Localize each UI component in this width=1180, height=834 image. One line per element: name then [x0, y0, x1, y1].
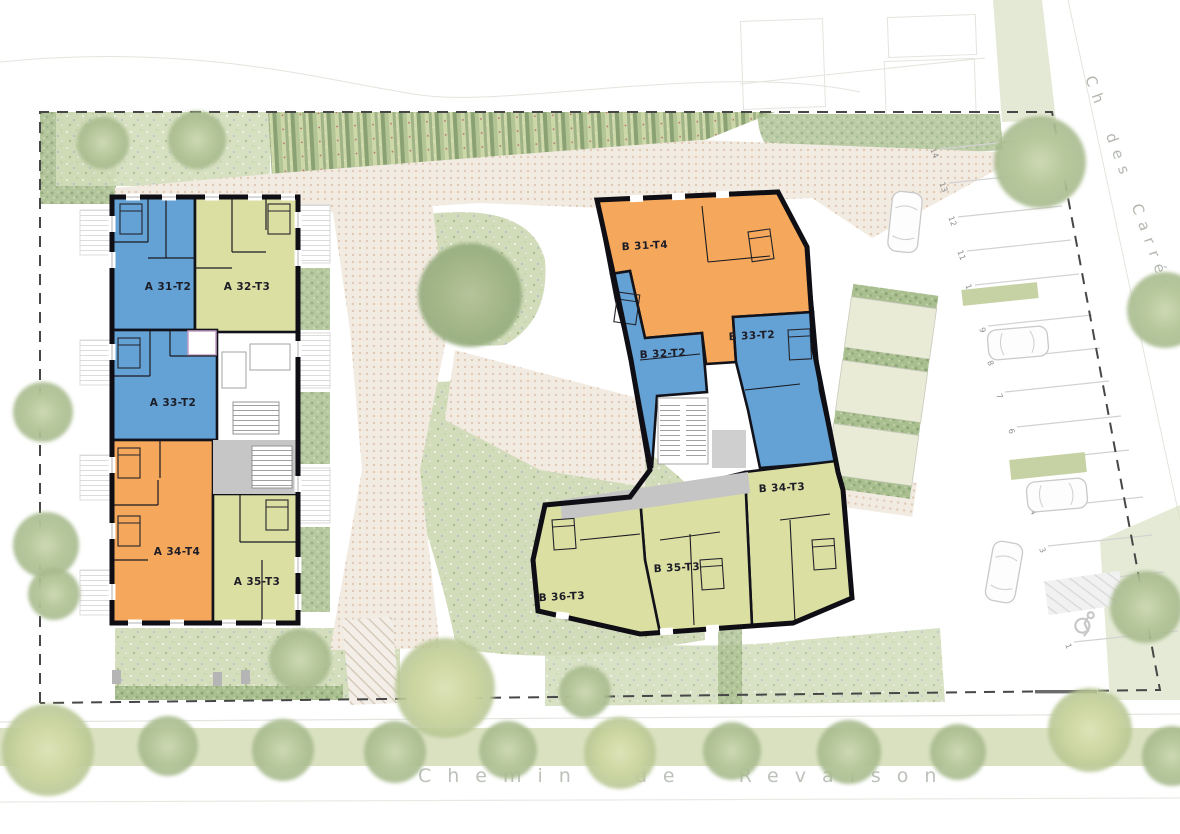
garden-patch — [300, 527, 330, 612]
hatched-path — [342, 617, 400, 705]
core-corridor — [712, 430, 746, 468]
window — [660, 628, 673, 636]
tree — [13, 512, 79, 578]
utility-room — [222, 352, 246, 388]
parking-green-strip — [1009, 452, 1087, 480]
building-a: A 31-T2 A 32-T3 A 33-T2 A 34-T4 A 35-T3 — [109, 194, 302, 627]
street-tree — [1048, 688, 1132, 772]
neighbor-plot-outline — [887, 14, 976, 57]
window — [716, 191, 729, 199]
garden-patch — [300, 392, 330, 464]
parking-space-number: 7 — [994, 392, 1004, 400]
street-tree — [479, 721, 537, 779]
stairs — [660, 402, 680, 460]
tree — [168, 111, 226, 169]
window — [706, 625, 719, 633]
parking-space-line — [1005, 381, 1109, 392]
unit-b35-label: B 35-T3 — [653, 561, 700, 575]
neighbor-plot-line — [740, 58, 985, 84]
garden-wall-post — [213, 672, 222, 686]
tree — [269, 629, 331, 691]
parking-space-line — [1017, 416, 1121, 427]
tree — [1110, 571, 1180, 643]
entry-deck — [80, 340, 112, 385]
parking-space-number: 12 — [946, 215, 958, 228]
site-plan-svg: 1234567891011121314 — [0, 0, 1180, 834]
unit-a32-region — [195, 197, 298, 332]
car-outline — [887, 191, 923, 254]
contour-line — [0, 56, 860, 97]
balcony — [300, 468, 330, 523]
tree — [28, 568, 80, 620]
garden-wall-post — [241, 670, 250, 684]
tree — [418, 243, 522, 347]
street-tree — [584, 717, 656, 789]
stairs — [686, 402, 706, 460]
garden-patch — [300, 268, 330, 330]
unit-b33-label: B 33-T2 — [728, 329, 775, 343]
unit-a33-label: A 33-T2 — [150, 397, 196, 409]
tree — [77, 117, 129, 169]
tree — [994, 116, 1086, 208]
tree — [13, 382, 73, 442]
street-tree — [930, 724, 986, 780]
street-tree — [252, 719, 314, 781]
stairs — [233, 402, 279, 434]
car-outline — [1026, 477, 1088, 512]
tree — [559, 666, 611, 718]
tree — [395, 638, 495, 738]
right-street-name: Ch des Carrés — [1081, 73, 1177, 298]
parking-space-number: 9 — [977, 326, 987, 334]
stairs — [252, 446, 292, 488]
street-tree — [703, 722, 761, 780]
car-outline — [987, 325, 1049, 360]
unit-b36-label: B 36-T3 — [538, 590, 585, 604]
entry-deck — [80, 570, 112, 615]
unit-b32-label: B 32-T2 — [639, 347, 686, 361]
balcony — [300, 205, 330, 263]
hedge-row — [718, 624, 742, 704]
unit-a34-region — [112, 440, 213, 623]
parking-space-number: 3 — [1037, 546, 1047, 554]
site-plan: 1234567891011121314 — [0, 0, 1180, 834]
unit-a34-label: A 34-T4 — [154, 546, 200, 558]
car-outline — [984, 540, 1024, 604]
unit-a32-label: A 32-T3 — [224, 281, 270, 293]
window — [672, 193, 685, 201]
wheelchair-icon — [1072, 611, 1100, 638]
parking-space-number: 1 — [1063, 642, 1073, 650]
parking-space-line — [967, 240, 1071, 251]
tree — [1127, 272, 1180, 348]
unit-b34-label: B 34-T3 — [758, 481, 805, 495]
window — [630, 195, 643, 203]
street-verge — [993, 0, 1056, 122]
street-tree — [2, 704, 94, 796]
balcony — [300, 333, 330, 388]
garden-wall-post — [112, 670, 121, 684]
unit-a35-region — [213, 494, 298, 623]
street-tree — [817, 720, 881, 784]
unit-b31-label: B 31-T4 — [621, 239, 668, 253]
parking-space-number: 6 — [1006, 427, 1016, 435]
street-tree — [138, 716, 198, 776]
terrace-gardens — [825, 284, 939, 499]
parking-space-number: 8 — [985, 359, 995, 367]
unit-a31-region — [112, 197, 195, 330]
parking-space-line — [988, 315, 1092, 326]
parking-space-number: 11 — [955, 249, 967, 262]
elevator — [188, 331, 216, 355]
utility-room — [250, 344, 290, 370]
unit-a31-label: A 31-T2 — [145, 281, 191, 293]
entry-deck — [80, 210, 112, 255]
street-tree — [364, 721, 426, 783]
neighbor-plot-outline — [740, 19, 825, 110]
street-edge-line — [0, 798, 1180, 802]
unit-a35-label: A 35-T3 — [234, 576, 280, 588]
entry-deck — [80, 455, 112, 500]
parking-space-line — [958, 206, 1062, 217]
